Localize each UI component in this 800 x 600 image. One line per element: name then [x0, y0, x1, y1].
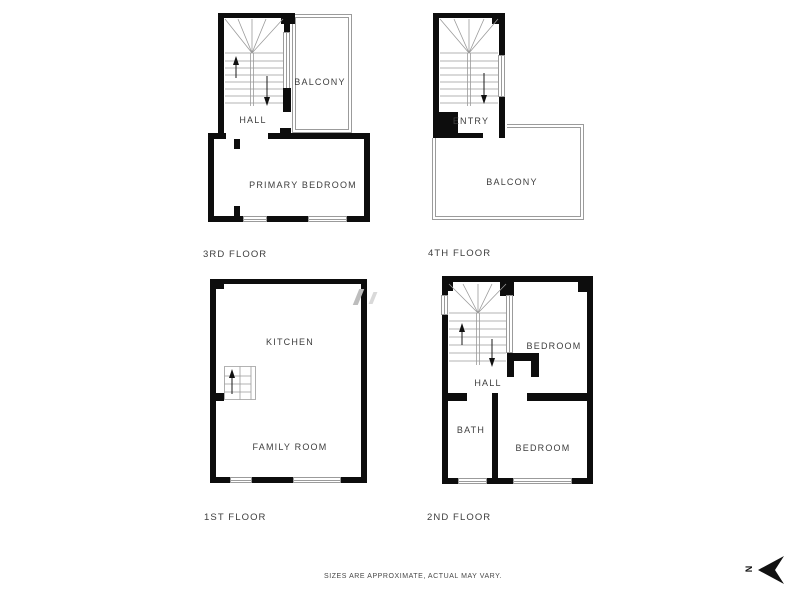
room-label-bedroom-top: BEDROOM	[527, 341, 582, 351]
window	[506, 295, 513, 353]
room-label-bedroom-bottom: BEDROOM	[516, 443, 571, 453]
room-label-hall: HALL	[474, 378, 501, 388]
wall	[507, 353, 514, 377]
room-label-bath: BATH	[457, 425, 485, 435]
floor-title-2nd: 2ND FLOOR	[427, 512, 491, 523]
wall	[531, 361, 539, 377]
staircase	[448, 283, 507, 369]
wall	[507, 282, 513, 295]
north-arrow-icon	[744, 554, 786, 586]
disclaimer-text: SIZES ARE APPROXIMATE, ACTUAL MAY VARY.	[324, 573, 502, 580]
wall	[442, 276, 593, 282]
window	[441, 295, 448, 315]
window	[458, 478, 487, 484]
wall	[444, 393, 467, 401]
wall	[587, 276, 593, 484]
wall	[492, 393, 498, 478]
wall	[527, 393, 587, 401]
floorplan-2nd-floor: HALL BEDROOM BATH BEDROOM 2ND FLOOR	[0, 0, 800, 600]
floorplan-sheet: HALL BALCONY PRIMARY BEDROOM 3RD FLOOR E…	[0, 0, 800, 600]
window	[513, 478, 572, 484]
